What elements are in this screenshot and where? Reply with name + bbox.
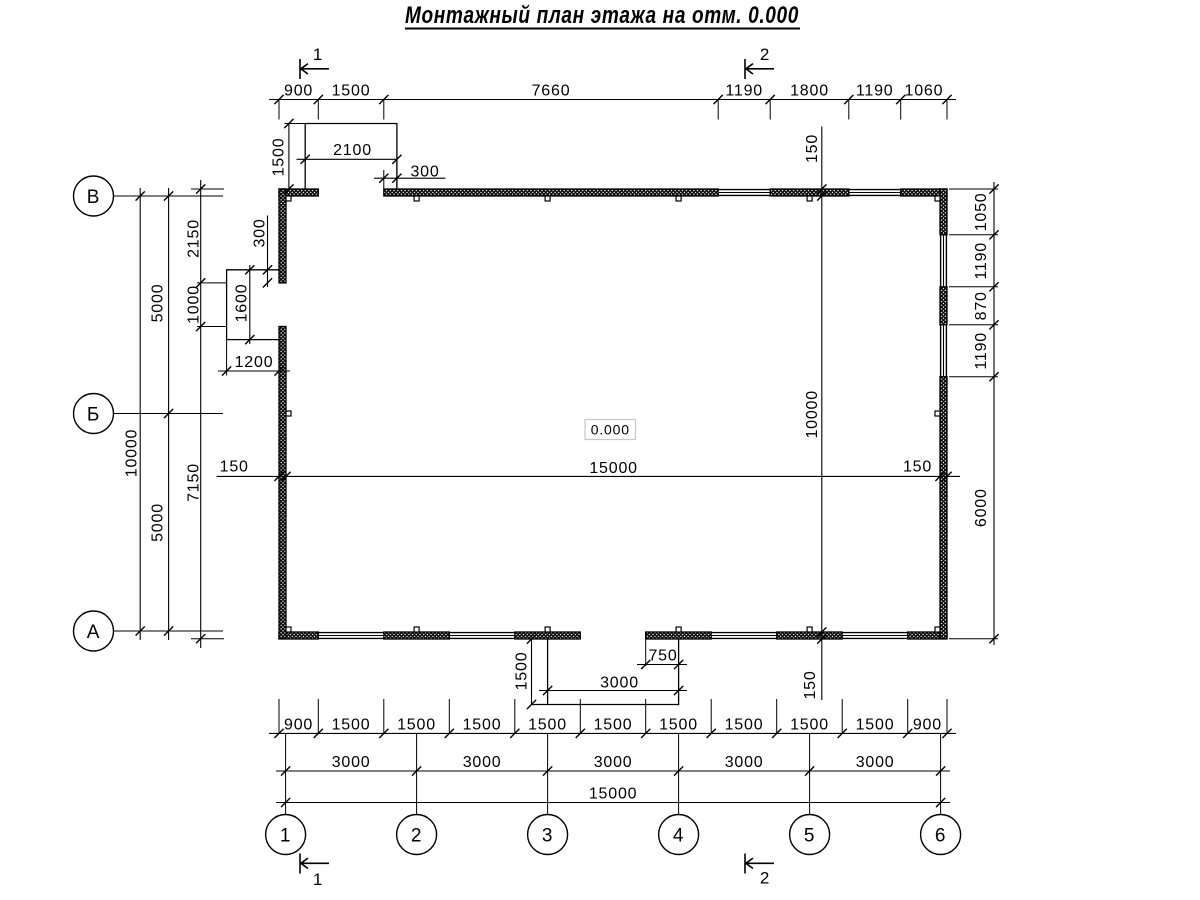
svg-text:1500: 1500 — [725, 717, 764, 734]
svg-text:1500: 1500 — [397, 717, 436, 734]
svg-text:3000: 3000 — [600, 675, 639, 692]
svg-text:5000: 5000 — [150, 284, 167, 323]
svg-text:150: 150 — [220, 459, 249, 476]
svg-text:Б: Б — [87, 404, 100, 425]
svg-text:7150: 7150 — [185, 463, 202, 502]
svg-text:1500: 1500 — [332, 83, 371, 100]
svg-text:15000: 15000 — [589, 786, 638, 803]
svg-text:900: 900 — [913, 717, 942, 734]
svg-text:6: 6 — [935, 825, 946, 846]
svg-text:1500: 1500 — [332, 717, 371, 734]
svg-text:15000: 15000 — [589, 460, 638, 477]
svg-text:7660: 7660 — [532, 83, 571, 100]
svg-text:150: 150 — [802, 670, 819, 699]
svg-text:900: 900 — [284, 83, 313, 100]
svg-text:2: 2 — [411, 825, 422, 846]
svg-text:750: 750 — [648, 648, 677, 665]
svg-text:300: 300 — [410, 163, 439, 180]
svg-text:900: 900 — [284, 717, 313, 734]
svg-text:150: 150 — [903, 459, 932, 476]
svg-text:1060: 1060 — [905, 83, 944, 100]
svg-text:1: 1 — [313, 45, 323, 64]
svg-text:2: 2 — [760, 869, 770, 888]
svg-text:6000: 6000 — [973, 488, 990, 527]
svg-text:2100: 2100 — [333, 142, 372, 159]
svg-text:1500: 1500 — [514, 652, 531, 691]
svg-text:1200: 1200 — [235, 354, 274, 371]
svg-text:1190: 1190 — [973, 242, 990, 280]
svg-text:3000: 3000 — [332, 754, 371, 771]
svg-text:В: В — [87, 187, 100, 208]
svg-text:3000: 3000 — [594, 754, 633, 771]
svg-text:1000: 1000 — [185, 285, 202, 324]
svg-text:1500: 1500 — [594, 717, 633, 734]
svg-text:1050: 1050 — [973, 193, 990, 232]
svg-text:1500: 1500 — [528, 717, 567, 734]
svg-text:3000: 3000 — [725, 754, 764, 771]
svg-text:3000: 3000 — [463, 754, 502, 771]
svg-text:1500: 1500 — [659, 717, 698, 734]
svg-text:1: 1 — [280, 825, 291, 846]
svg-text:1800: 1800 — [790, 83, 829, 100]
svg-text:0.000: 0.000 — [591, 421, 630, 437]
svg-text:1500: 1500 — [463, 717, 502, 734]
svg-text:10000: 10000 — [124, 429, 141, 478]
svg-text:3000: 3000 — [856, 754, 895, 771]
svg-text:1500: 1500 — [856, 717, 895, 734]
svg-text:1500: 1500 — [271, 138, 288, 177]
svg-text:1190: 1190 — [856, 83, 894, 100]
svg-text:10000: 10000 — [804, 390, 821, 439]
svg-text:870: 870 — [973, 291, 990, 320]
svg-text:Монтажный план этажа на отм. 0: Монтажный план этажа на отм. 0.000 — [405, 2, 799, 29]
svg-text:1500: 1500 — [790, 717, 829, 734]
svg-text:1190: 1190 — [725, 83, 763, 100]
svg-text:2150: 2150 — [185, 219, 202, 258]
svg-text:4: 4 — [673, 825, 684, 846]
svg-text:2: 2 — [760, 45, 770, 64]
svg-text:5: 5 — [804, 825, 815, 846]
svg-text:150: 150 — [804, 134, 821, 163]
svg-text:3: 3 — [542, 825, 553, 846]
svg-text:1600: 1600 — [234, 284, 251, 323]
svg-text:5000: 5000 — [150, 503, 167, 542]
svg-text:1190: 1190 — [973, 332, 990, 370]
svg-text:300: 300 — [252, 218, 269, 247]
svg-text:А: А — [87, 622, 100, 643]
svg-text:1: 1 — [313, 870, 323, 889]
